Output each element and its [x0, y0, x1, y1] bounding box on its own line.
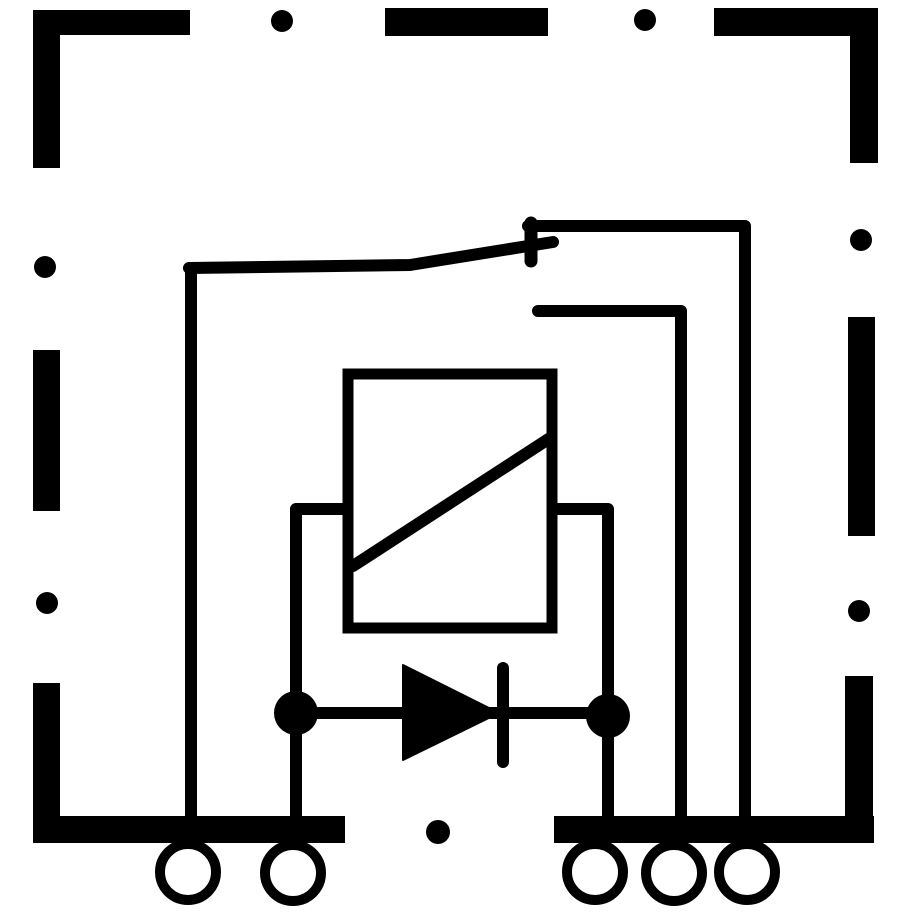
housing-border-bottom-right-bar: [554, 816, 874, 843]
housing-border-dot-left-upper: [34, 256, 56, 278]
housing-border-dot-top-right: [634, 9, 656, 31]
terminal-pin-4: [646, 845, 702, 901]
terminal-pin-5: [719, 844, 775, 900]
housing-border-top-left-vertical: [33, 10, 60, 168]
relay-circuit-schematic: [0, 0, 913, 913]
junction-dot-coil-right: [586, 694, 630, 738]
housing-border-right-dash: [848, 317, 875, 536]
housing-border-dot-left-lower: [36, 592, 58, 614]
housing-border-top-right-vertical: [850, 8, 878, 163]
housing-border-dot-right-lower: [848, 600, 870, 622]
junction-dot-coil-left: [274, 691, 318, 735]
housing-border-top-dash: [385, 8, 548, 36]
relay-schematic-page: [0, 0, 913, 913]
housing-border-dot-bottom: [426, 820, 450, 844]
terminal-pin-2: [265, 845, 321, 901]
housing-border-left-dash: [33, 350, 60, 511]
housing-border-dot-right-upper: [850, 229, 872, 251]
terminal-pin-3: [567, 844, 623, 900]
housing-border-dot-top-left: [271, 10, 293, 32]
schematic-background: [0, 0, 913, 913]
terminal-pin-1: [160, 844, 216, 900]
